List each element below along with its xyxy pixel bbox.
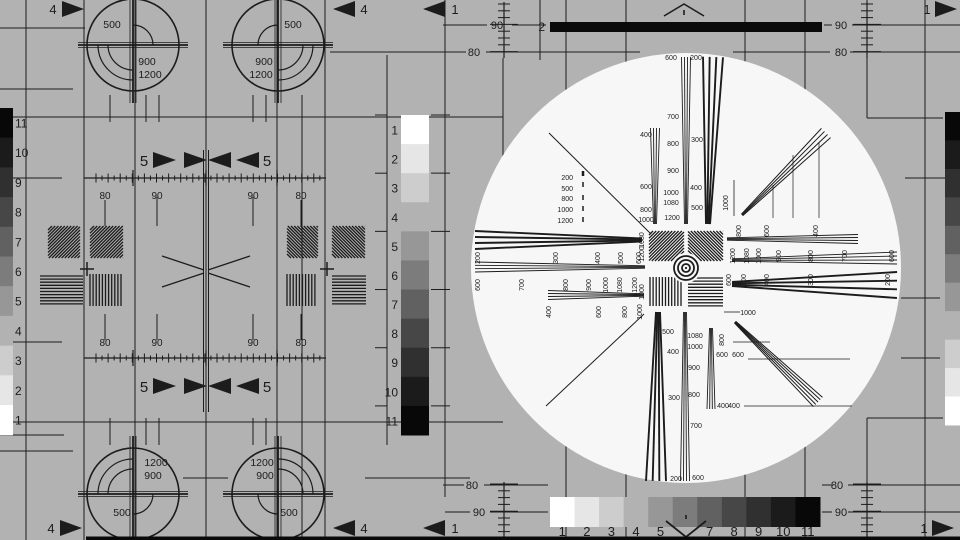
label: 600 xyxy=(640,184,652,191)
label: 500 xyxy=(284,19,302,31)
label: 90 xyxy=(835,507,847,519)
label: 800 xyxy=(808,250,815,262)
label: 600 xyxy=(889,250,896,262)
label: 400 xyxy=(595,252,602,264)
label: 90 xyxy=(247,191,259,202)
label: 10 xyxy=(15,146,29,160)
label: 400 xyxy=(728,403,740,410)
label: 800 xyxy=(667,141,679,148)
label: 300 xyxy=(691,137,703,144)
label: 10 xyxy=(385,385,399,399)
label: 6 xyxy=(391,269,398,283)
label: 90 xyxy=(835,20,847,32)
label: 600 xyxy=(475,279,482,291)
label: 90 xyxy=(491,20,503,32)
label: 1000 xyxy=(687,344,703,351)
label: 90 xyxy=(151,191,163,202)
label: 500 xyxy=(662,329,674,336)
label: 1080 xyxy=(639,232,646,248)
tv-resolution-test-pattern: 6002007008009001000108012004006008001000… xyxy=(0,0,960,540)
label: 300 xyxy=(668,395,680,402)
label: 9 xyxy=(15,176,22,190)
label: 500 xyxy=(113,507,131,519)
label: 500 xyxy=(103,19,121,31)
label: 400 xyxy=(690,185,702,192)
label: 600 xyxy=(764,225,771,237)
label: 700 xyxy=(842,250,849,262)
label: 4 xyxy=(360,2,367,17)
label: 900 xyxy=(256,470,274,482)
label: 500 xyxy=(741,274,748,286)
label: 600 xyxy=(692,475,704,482)
label: 80 xyxy=(468,47,480,59)
label: 1200 xyxy=(144,457,168,469)
label: 500 xyxy=(280,507,298,519)
label: 1 xyxy=(920,521,927,536)
label: 80 xyxy=(835,47,847,59)
label: 6 xyxy=(15,265,22,279)
label: 1080 xyxy=(687,333,703,340)
label: 800 xyxy=(736,225,743,237)
label: 600 xyxy=(716,352,728,359)
label: 1200 xyxy=(632,277,639,293)
label: 900 xyxy=(138,56,156,68)
label: 1 xyxy=(451,521,458,536)
label: 3 xyxy=(15,354,22,368)
label: 1 xyxy=(15,414,22,428)
label: 4 xyxy=(360,521,367,536)
label: 900 xyxy=(144,470,162,482)
bottom-edge-bar xyxy=(86,537,960,540)
label: 8 xyxy=(391,327,398,341)
label: 700 xyxy=(690,423,702,430)
grayscale-strip-right xyxy=(945,112,960,425)
label: 800 xyxy=(688,392,700,399)
label: 400 xyxy=(764,274,771,286)
label: 700 xyxy=(519,279,526,291)
label: 1000 xyxy=(557,207,573,214)
label: 1200 xyxy=(730,248,737,264)
label: 2 xyxy=(538,20,545,34)
label: 3 xyxy=(391,182,398,196)
label: 1 xyxy=(923,2,930,17)
label: 1200 xyxy=(250,457,274,469)
label: 5 xyxy=(263,153,271,170)
label: 90 xyxy=(473,507,485,519)
label: 90 xyxy=(247,338,259,349)
label: 5 xyxy=(391,240,398,254)
label: 300 xyxy=(808,274,815,286)
label: 700 xyxy=(667,114,679,121)
label: 400 xyxy=(667,349,679,356)
label: 500 xyxy=(618,252,625,264)
label: 400 xyxy=(640,132,652,139)
label: 1 xyxy=(451,2,458,17)
label: 11 xyxy=(386,414,399,428)
label: 80 xyxy=(295,338,307,349)
label: 200 xyxy=(670,476,682,483)
label: 600 xyxy=(732,352,744,359)
label: 4 xyxy=(49,2,56,17)
label: 1000 xyxy=(639,284,646,300)
label: 1000 xyxy=(663,190,679,197)
label: 90 xyxy=(151,338,163,349)
label: 900 xyxy=(255,56,273,68)
label: 900 xyxy=(667,168,679,175)
label: 900 xyxy=(688,365,700,372)
label: 800 xyxy=(561,196,573,203)
label: 80 xyxy=(99,191,111,202)
label: 600 xyxy=(636,252,643,264)
label: 800 xyxy=(563,279,570,291)
label: 1200 xyxy=(138,69,162,81)
label: 1000 xyxy=(740,310,756,317)
label: 80 xyxy=(466,480,478,492)
label: 5 xyxy=(140,153,148,170)
label: 1080 xyxy=(744,248,751,264)
label: 4 xyxy=(47,521,54,536)
label: 5 xyxy=(140,379,148,396)
label: 1080 xyxy=(617,277,624,293)
label: 200 xyxy=(561,175,573,182)
label: 600 xyxy=(726,274,733,286)
label: 200 xyxy=(690,55,702,62)
bullseye xyxy=(671,253,701,283)
label: 5 xyxy=(15,295,22,309)
label: 800 xyxy=(719,334,726,346)
label: 900 xyxy=(586,279,593,291)
label: 80 xyxy=(295,191,307,202)
label: 500 xyxy=(561,186,573,193)
label: 1000 xyxy=(723,195,730,211)
label: 80 xyxy=(99,338,111,349)
label: 7 xyxy=(391,298,398,312)
label: 8 xyxy=(15,206,22,220)
label: 5 xyxy=(263,379,271,396)
label: 1000 xyxy=(756,248,763,264)
label: 4 xyxy=(15,324,22,338)
label: 2 xyxy=(391,153,398,167)
label: 400 xyxy=(813,225,820,237)
label: 300 xyxy=(553,252,560,264)
reference-bar-top: 2 xyxy=(538,20,822,34)
label: 1 xyxy=(391,124,398,138)
label: 1080 xyxy=(663,200,679,207)
label: 4 xyxy=(391,211,398,225)
label: 1000 xyxy=(638,217,654,224)
label: 1200 xyxy=(249,69,273,81)
resolution-test-chart: 6002007008009001000108012004006008001000… xyxy=(0,0,960,540)
label: 800 xyxy=(622,306,629,318)
label: 7 xyxy=(15,235,22,249)
label: 200 xyxy=(475,252,482,264)
label: 400 xyxy=(546,306,553,318)
label: 1000 xyxy=(603,277,610,293)
label: 80 xyxy=(831,480,843,492)
label: 2 xyxy=(15,384,22,398)
label: 600 xyxy=(596,306,603,318)
label: 600 xyxy=(665,55,677,62)
label: 200 xyxy=(885,274,892,286)
label: 9 xyxy=(391,356,398,370)
label: 500 xyxy=(691,205,703,212)
label: 1000 xyxy=(637,304,644,320)
label: 11 xyxy=(15,117,28,131)
label: 900 xyxy=(776,250,783,262)
label: 1200 xyxy=(664,215,680,222)
label: 1200 xyxy=(557,218,573,225)
label: 800 xyxy=(640,207,652,214)
